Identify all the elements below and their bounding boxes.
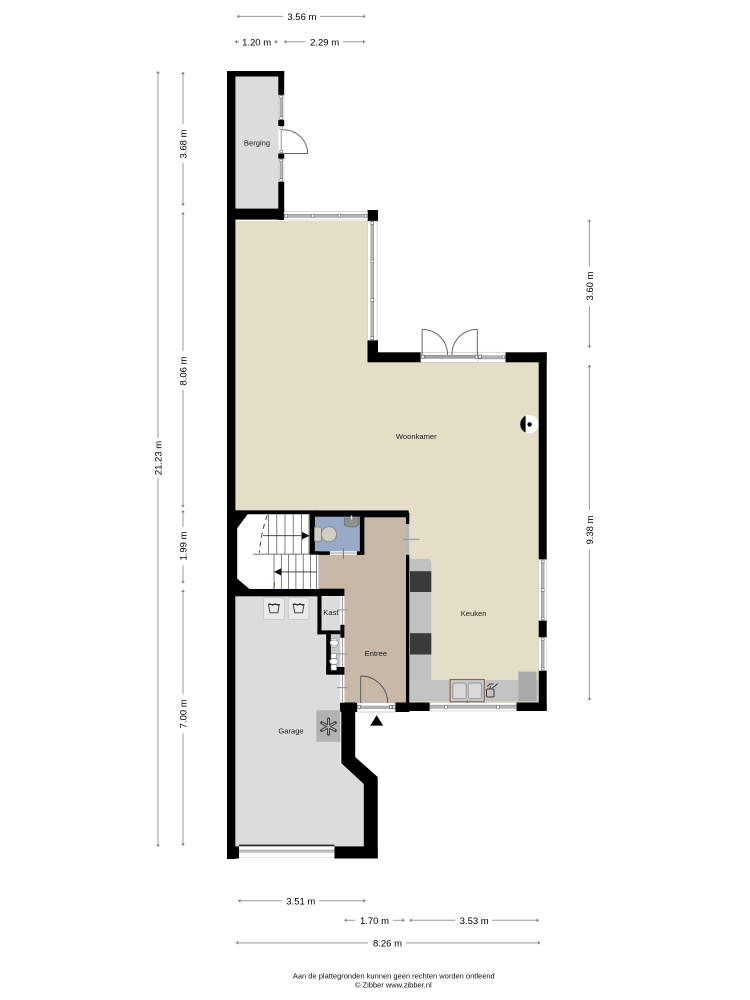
svg-text:3.53 m: 3.53 m <box>460 916 489 927</box>
svg-text:3.51 m: 3.51 m <box>286 896 315 907</box>
svg-text:3.56 m: 3.56 m <box>287 12 316 23</box>
svg-text:Woonkamer: Woonkamer <box>396 432 437 441</box>
svg-text:Aan de plattegronden kunnen ge: Aan de plattegronden kunnen geen rechten… <box>293 972 495 981</box>
svg-text:© Zibber www.zibber.nl: © Zibber www.zibber.nl <box>355 981 432 990</box>
svg-text:3.68 m: 3.68 m <box>179 129 190 158</box>
svg-text:3.60 m: 3.60 m <box>585 271 596 300</box>
svg-text:8.26 m: 8.26 m <box>373 938 402 949</box>
svg-text:1.99 m: 1.99 m <box>179 531 190 560</box>
svg-text:Garage: Garage <box>278 727 303 736</box>
svg-text:1.20 m: 1.20 m <box>242 37 271 48</box>
svg-text:8.06 m: 8.06 m <box>179 356 190 385</box>
svg-text:2.29 m: 2.29 m <box>310 37 339 48</box>
svg-text:Kast: Kast <box>323 608 339 617</box>
svg-text:7.00 m: 7.00 m <box>179 699 190 728</box>
svg-text:9.38 m: 9.38 m <box>585 515 596 544</box>
svg-text:Keuken: Keuken <box>461 609 487 618</box>
svg-text:1.70 m: 1.70 m <box>360 916 389 927</box>
svg-text:21.23 m: 21.23 m <box>154 441 165 475</box>
svg-text:Entree: Entree <box>365 649 387 658</box>
svg-text:Berging: Berging <box>244 139 270 148</box>
